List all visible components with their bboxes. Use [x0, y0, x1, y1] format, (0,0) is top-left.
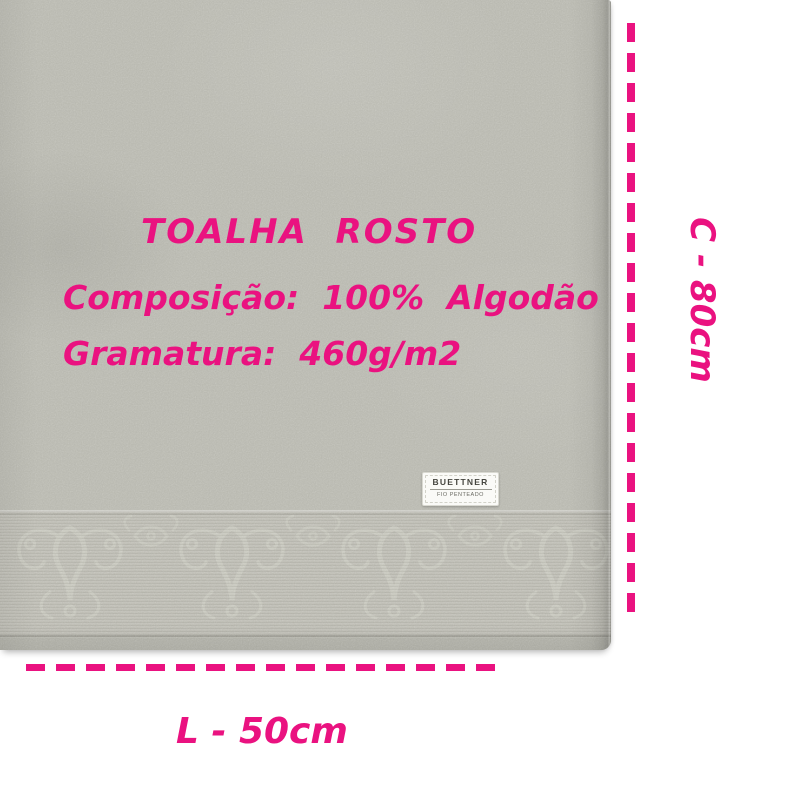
product-image: BUETTNER FIO PENTEADO TOALHA ROSTO Compo… — [0, 0, 800, 800]
height-measure-line — [627, 23, 635, 615]
brand-tag: BUETTNER FIO PENTEADO — [422, 472, 499, 506]
brand-name: BUETTNER — [423, 478, 498, 487]
height-measure-label: C - 80cm — [685, 200, 719, 400]
towel-photo: BUETTNER FIO PENTEADO — [0, 0, 611, 650]
towel-texture — [0, 0, 611, 650]
brand-subtitle: FIO PENTEADO — [423, 492, 498, 498]
product-grammage: Gramatura: 460g/m2 — [63, 337, 461, 370]
tag-divider — [430, 489, 492, 490]
product-title: TOALHA ROSTO — [141, 215, 477, 249]
width-measure-label: L - 50cm — [176, 714, 348, 750]
width-measure-line — [26, 664, 498, 671]
product-composition: Composição: 100% Algodão — [63, 281, 599, 314]
